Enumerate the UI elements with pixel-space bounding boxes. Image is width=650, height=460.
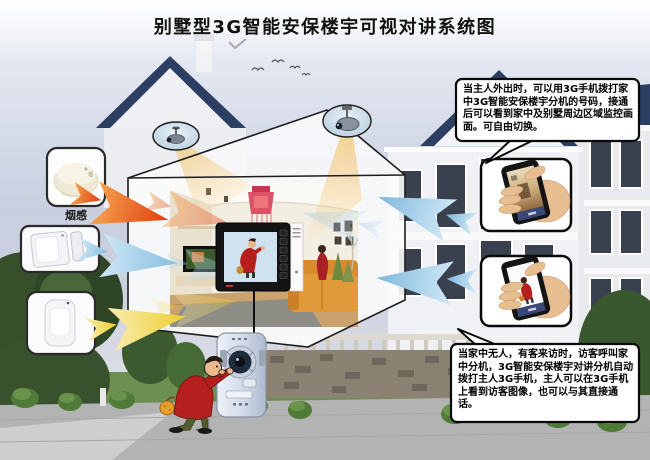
video-intercom-monitor bbox=[216, 223, 303, 291]
smoke-sensor-label: 烟感 bbox=[45, 207, 107, 223]
smoke-detector-icon: 烟 bbox=[54, 163, 98, 197]
poster-canvas: 烟 bbox=[0, 0, 650, 460]
ceiling-camera-right bbox=[323, 105, 371, 137]
callout-visitor-call-text: 当家中无人，有客来访时，访客呼叫家中分机，3G智能安保楼宇对讲分机自动拨打主人3… bbox=[458, 349, 634, 412]
svg-text:烟: 烟 bbox=[88, 171, 93, 178]
monitored-house bbox=[128, 105, 405, 347]
phone-card-visitor-view bbox=[481, 254, 571, 326]
infrared-sensor-icon bbox=[45, 300, 75, 346]
birds bbox=[252, 60, 310, 75]
phone-card-home-view bbox=[481, 158, 571, 231]
callout-owner-away-text: 当主人外出时，可以用3G手机拨打家中3G智能安保楼宇分机的号码，接通后可以看到家… bbox=[463, 84, 635, 134]
ceiling-camera-left bbox=[153, 122, 199, 150]
doorbell-button[interactable] bbox=[243, 379, 256, 387]
page-title: 别墅型3G智能安保楼宇可视对讲系统图 bbox=[0, 13, 650, 39]
sensor-infrared-box bbox=[27, 292, 95, 354]
